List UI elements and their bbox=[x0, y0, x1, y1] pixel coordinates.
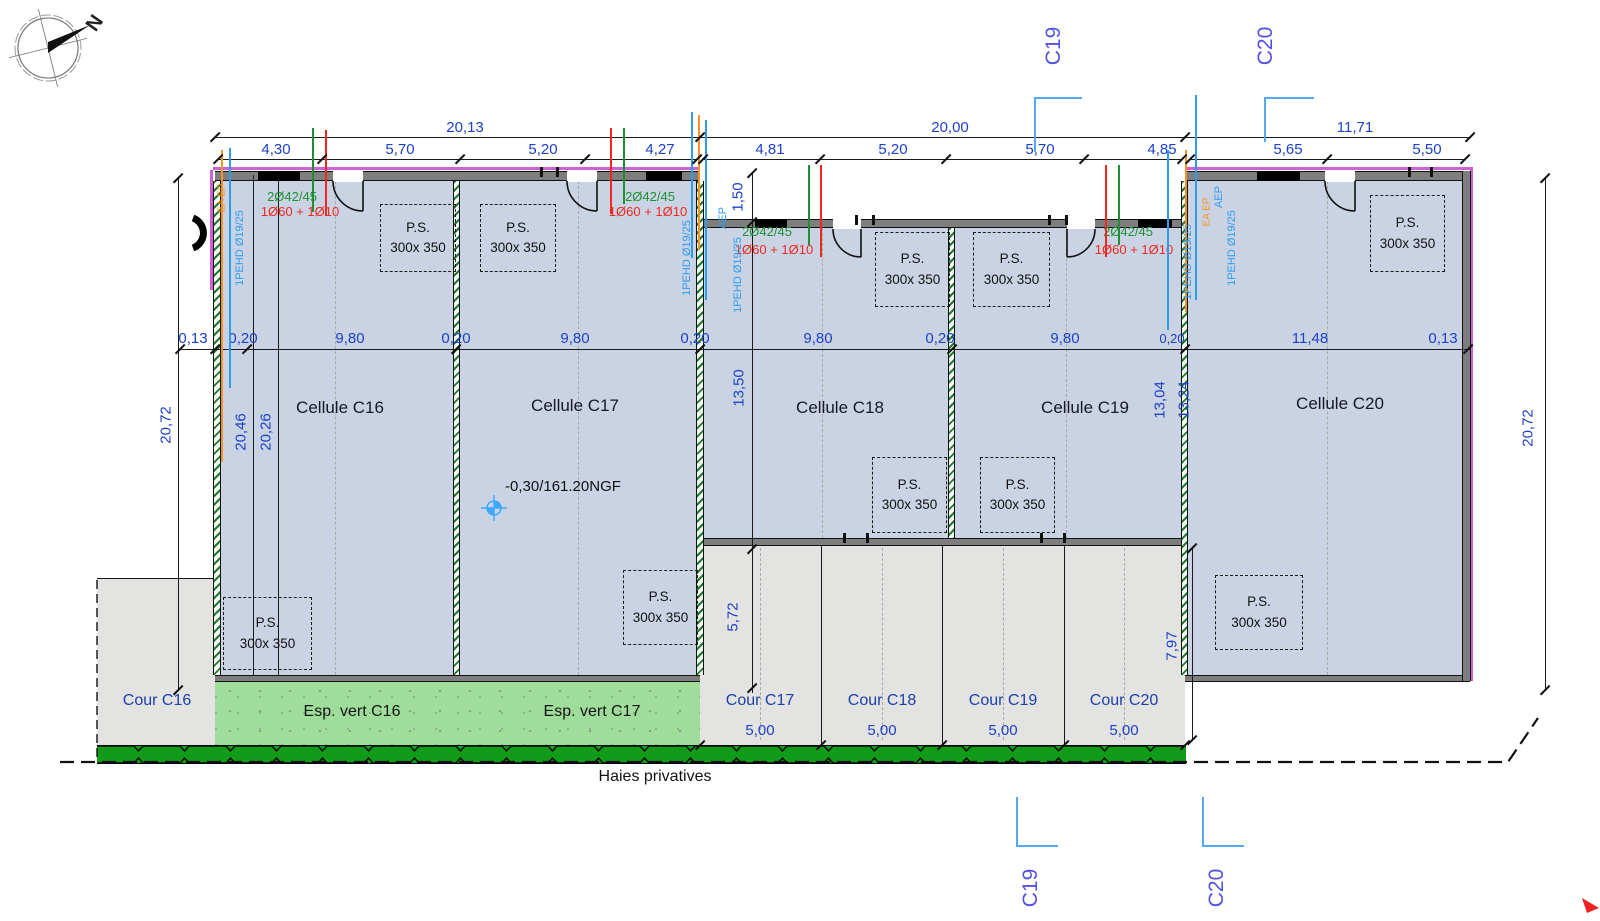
dim-mid: 0,20 bbox=[228, 330, 257, 347]
ps-size: 300x 350 bbox=[390, 238, 446, 258]
cell-axis bbox=[822, 228, 823, 538]
ps-label: P.S. bbox=[1247, 592, 1271, 612]
dim-line-court-c20 bbox=[1192, 548, 1193, 740]
pipe-red bbox=[325, 130, 327, 216]
dim-court-c17-depth: 5,72 bbox=[725, 602, 742, 631]
ps-box-c19-bottom: P.S. 300x 350 bbox=[980, 457, 1055, 533]
cell-axis bbox=[1327, 181, 1328, 675]
pipe-blue bbox=[229, 148, 231, 388]
court-divider bbox=[1064, 545, 1065, 745]
dim-mid: 9,80 bbox=[560, 330, 589, 347]
ps-box-c16-bottom: P.S. 300x 350 bbox=[223, 597, 312, 670]
cour-c17-label: Cour C17 bbox=[726, 692, 794, 710]
dim-mid: 11,48 bbox=[1292, 330, 1328, 347]
window-mark bbox=[855, 215, 858, 225]
left-exterior-wall bbox=[213, 181, 221, 675]
dim-line-total-s1 bbox=[215, 137, 700, 138]
ps-label: P.S. bbox=[901, 249, 925, 269]
ps-box-c20-bottom: P.S. 300x 350 bbox=[1215, 575, 1303, 650]
court-centerline bbox=[760, 548, 761, 740]
ps-size: 300x 350 bbox=[882, 495, 938, 515]
section-marker-bracket bbox=[1016, 797, 1018, 847]
ps-label: P.S. bbox=[898, 475, 922, 495]
top-wall-c20 bbox=[1185, 171, 1470, 181]
pipe-red bbox=[610, 128, 612, 214]
pipe-green bbox=[1118, 165, 1120, 245]
pipe-label-ea-ep: EA EP bbox=[1202, 198, 1213, 227]
pipe-label-pehd: 1PEHD Ø19/25 bbox=[732, 237, 744, 313]
ps-label: P.S. bbox=[506, 218, 530, 238]
ps-label: P.S. bbox=[1000, 249, 1024, 269]
cour-c17-width: 5,00 bbox=[745, 722, 774, 739]
pipe-blue bbox=[705, 120, 707, 300]
ps-size: 300x 350 bbox=[1380, 234, 1436, 254]
dim-part: 5,70 bbox=[1025, 141, 1054, 158]
dim-mid: 9,80 bbox=[803, 330, 832, 347]
cell-label-c19: Cellule C19 bbox=[1041, 398, 1129, 418]
dim-mid: 0,20 bbox=[441, 330, 470, 347]
section-marker-bracket bbox=[1264, 97, 1266, 142]
dim-mid: 0,20 bbox=[1159, 331, 1184, 346]
section-marker-bracket bbox=[1034, 97, 1082, 99]
ps-box-c18-bottom: P.S. 300x 350 bbox=[872, 457, 947, 533]
section-marker-c19-bottom: C19 bbox=[1019, 869, 1043, 908]
court-centerline bbox=[1124, 548, 1125, 740]
wall-segment bbox=[1257, 171, 1300, 181]
dim-line-total-s2 bbox=[700, 137, 1185, 138]
dim-inner: 20,46 bbox=[233, 413, 250, 451]
section-marker-c19-top: C19 bbox=[1042, 27, 1066, 66]
dim-mid: 0,13 bbox=[1428, 330, 1457, 347]
dim-left-total: 20,72 bbox=[158, 406, 175, 444]
court-centerline bbox=[882, 548, 883, 740]
hedge-band bbox=[97, 745, 1186, 764]
pipe-blue bbox=[1167, 150, 1169, 330]
cour-c18-width: 5,00 bbox=[867, 722, 896, 739]
dim-right-inner: 13,24 bbox=[1176, 381, 1193, 419]
pipe-label-pehd: 1PEHD Ø19/25 bbox=[234, 210, 246, 286]
dim-part: 5,20 bbox=[878, 141, 907, 158]
compass-icon bbox=[6, 4, 96, 94]
dim-line-left bbox=[178, 177, 179, 690]
cell-axis bbox=[335, 181, 336, 675]
cour-c16-area bbox=[97, 578, 215, 745]
pipe-label-pehd: 1PEHD Ø19/25 bbox=[1182, 224, 1194, 300]
rebar-green: 2Ø42/45 bbox=[742, 224, 792, 239]
ps-label: P.S. bbox=[406, 218, 430, 238]
window-mark bbox=[1430, 167, 1433, 177]
dim-total-s1: 20,13 bbox=[446, 119, 484, 136]
ps-size: 300x 350 bbox=[490, 238, 546, 258]
dim-mid: 9,80 bbox=[1050, 330, 1079, 347]
bottom-wall-c18-c19 bbox=[700, 538, 1185, 546]
rebar-red: 1Ø60 + 1Ø10 bbox=[735, 242, 813, 257]
ps-box-c20-top: P.S. 300x 350 bbox=[1370, 195, 1445, 272]
pipe-label-aep: AEP bbox=[1213, 186, 1225, 208]
section-marker-c20-top: C20 bbox=[1254, 27, 1278, 66]
pipe-label-pehd: 1PEHD Ø19/25 bbox=[1226, 210, 1238, 286]
dim-right-inner: 13,04 bbox=[1152, 381, 1169, 419]
ps-size: 300x 350 bbox=[240, 634, 296, 654]
window-mark bbox=[1048, 215, 1051, 225]
dim-mid-height: 13,50 bbox=[731, 369, 748, 407]
window-mark bbox=[1040, 533, 1043, 543]
cell-label-c18: Cellule C18 bbox=[796, 398, 884, 418]
cell-label-c16: Cellule C16 bbox=[296, 398, 384, 418]
pipe-blue bbox=[1195, 95, 1197, 300]
ps-size: 300x 350 bbox=[1231, 613, 1287, 633]
rebar-red: 1Ø60 + 1Ø10 bbox=[609, 204, 687, 219]
cour-c18-label: Cour C18 bbox=[848, 692, 916, 710]
ps-box-c19-top: P.S. 300x 350 bbox=[973, 232, 1050, 307]
dim-inner: 20,26 bbox=[258, 413, 275, 451]
hedge-label: Haies privatives bbox=[599, 768, 712, 786]
court-centerline bbox=[1003, 548, 1004, 740]
dim-total-s3: 11,71 bbox=[1337, 119, 1373, 136]
ps-label: P.S. bbox=[256, 613, 280, 633]
dim-line-total-s3 bbox=[1185, 137, 1470, 138]
cell-label-c17: Cellule C17 bbox=[531, 396, 619, 416]
pipe-green bbox=[623, 128, 625, 204]
section-marker-bracket bbox=[1264, 97, 1314, 99]
window-mark bbox=[540, 167, 543, 177]
ps-label: P.S. bbox=[649, 587, 673, 607]
ps-box-c17-top: P.S. 300x 350 bbox=[480, 204, 556, 272]
cell-axis bbox=[578, 181, 579, 675]
rebar-green: 2Ø42/45 bbox=[625, 189, 675, 204]
pipe-label-aep: AEP bbox=[717, 207, 729, 229]
pipe-red bbox=[820, 165, 822, 257]
dim-mid: 9,80 bbox=[335, 330, 364, 347]
section-marker-bracket bbox=[1016, 845, 1058, 847]
dim-part: 5,65 bbox=[1273, 141, 1302, 158]
clip-icon bbox=[193, 218, 203, 248]
facade-accent-c16-c17 bbox=[213, 167, 700, 170]
section-marker-bracket bbox=[1202, 797, 1204, 847]
cell-label-c20: Cellule C20 bbox=[1296, 394, 1384, 414]
cell-axis bbox=[1066, 228, 1067, 538]
floor-plan: N P.S. 300x 350 P bbox=[0, 0, 1600, 921]
corner-mark-icon bbox=[1582, 898, 1599, 913]
level-annotation: -0,30/161.20NGF bbox=[505, 478, 621, 495]
pipe-green bbox=[312, 128, 314, 212]
dim-part: 4,81 bbox=[755, 141, 784, 158]
dim-part: 5,50 bbox=[1412, 141, 1441, 158]
ps-label: P.S. bbox=[1006, 475, 1030, 495]
window-mark bbox=[866, 533, 869, 543]
dim-part: 4,30 bbox=[261, 141, 290, 158]
section-marker-bracket bbox=[1034, 97, 1036, 152]
ps-size: 300x 350 bbox=[990, 495, 1046, 515]
ps-size: 300x 350 bbox=[984, 270, 1040, 290]
rebar-green: 2Ø42/45 bbox=[1103, 224, 1153, 239]
court-divider bbox=[821, 545, 822, 745]
pipe-label-ea-ep: EA EP bbox=[217, 184, 228, 213]
pipe-green bbox=[808, 165, 810, 245]
bottom-wall-c16-c17 bbox=[215, 675, 700, 682]
cour-c19-label: Cour C19 bbox=[969, 692, 1037, 710]
bottom-wall-c20 bbox=[1185, 675, 1470, 682]
rebar-red: 1Ø60 + 1Ø10 bbox=[261, 204, 339, 219]
dim-right-total: 20,72 bbox=[1520, 409, 1537, 447]
dim-total-s2: 20,00 bbox=[931, 119, 969, 136]
dim-part: 5,20 bbox=[528, 141, 557, 158]
ps-box-c18-top: P.S. 300x 350 bbox=[875, 232, 950, 307]
window-mark bbox=[872, 215, 875, 225]
pipe-red bbox=[1105, 165, 1107, 257]
section-marker-bracket bbox=[1202, 845, 1244, 847]
dim-part: 4,85 bbox=[1147, 141, 1176, 158]
window-mark bbox=[1065, 215, 1068, 225]
right-wall-c20 bbox=[1462, 171, 1471, 681]
esp-vert-c16-label: Esp. vert C16 bbox=[304, 703, 401, 721]
ps-box-c16-top: P.S. 300x 350 bbox=[380, 204, 456, 272]
dim-line-right bbox=[1545, 178, 1546, 690]
ps-box-c17-bottom: P.S. 300x 350 bbox=[623, 570, 698, 645]
esp-vert-c17-label: Esp. vert C17 bbox=[544, 703, 641, 721]
wall-segment bbox=[646, 171, 682, 181]
ps-size: 300x 350 bbox=[885, 270, 941, 290]
ps-label: P.S. bbox=[1396, 213, 1420, 233]
dim-mid: 0,20 bbox=[925, 330, 954, 347]
court-divider bbox=[942, 545, 943, 745]
dim-offset: 1,50 bbox=[730, 182, 747, 211]
cour-c16-label: Cour C16 bbox=[123, 692, 191, 710]
dim-part: 4,27 bbox=[645, 141, 674, 158]
cour-c20-width: 5,00 bbox=[1109, 722, 1138, 739]
rebar-green: 2Ø42/45 bbox=[267, 189, 317, 204]
cour-c20-label: Cour C20 bbox=[1090, 692, 1158, 710]
window-mark bbox=[1063, 533, 1066, 543]
pipe-label-pehd: 1PEHD Ø19/25 bbox=[681, 220, 693, 296]
dim-court-c20-depth: 7,97 bbox=[1164, 631, 1181, 660]
ps-size: 300x 350 bbox=[633, 608, 689, 628]
window-mark bbox=[556, 167, 559, 177]
cour-c19-width: 5,00 bbox=[988, 722, 1017, 739]
dim-line-mid bbox=[178, 349, 1470, 350]
window-mark bbox=[843, 533, 846, 543]
dim-part: 5,70 bbox=[385, 141, 414, 158]
window-mark bbox=[1408, 167, 1411, 177]
section-marker-c20-bottom: C20 bbox=[1205, 869, 1229, 908]
